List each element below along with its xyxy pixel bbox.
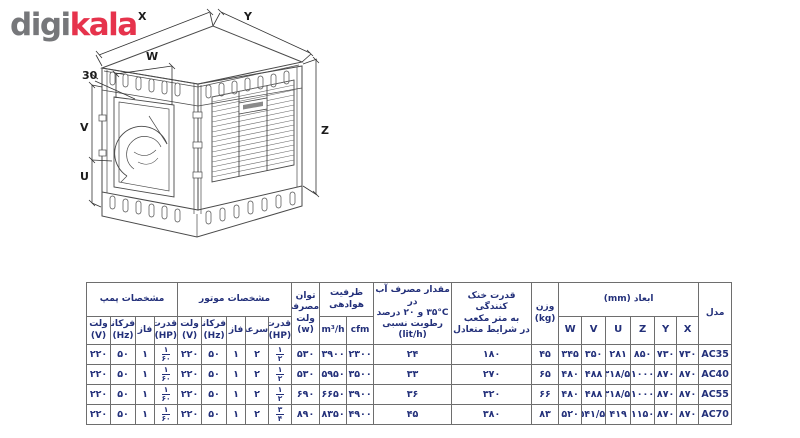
table-cell: ۸۹۰ bbox=[292, 405, 320, 425]
base-skirt bbox=[102, 186, 302, 237]
table-cell: ۳۹۰۰ bbox=[347, 385, 374, 405]
table-cell: ۵۳۰ bbox=[292, 345, 320, 365]
table-cell: ۵۰ bbox=[202, 405, 227, 425]
col-header-m3h: m³/h bbox=[320, 317, 347, 345]
table-cell: ۵۰ bbox=[202, 345, 227, 365]
dim-label-z: Z bbox=[321, 124, 329, 137]
table-cell: ۱۶۰ bbox=[155, 365, 178, 385]
dim-label-u: U bbox=[80, 170, 89, 183]
cooler-body bbox=[99, 26, 302, 237]
col-header-dim-v: V bbox=[582, 317, 606, 345]
table-cell: ۸۷۰ bbox=[655, 365, 677, 385]
table-cell: ۴۵ bbox=[532, 345, 559, 365]
table-cell: ۳۵۰ bbox=[582, 345, 606, 365]
table-cell: ۵۰ bbox=[111, 385, 136, 405]
table-cell: ۱۰۰۰ bbox=[631, 385, 655, 405]
table-cell: ۵۰ bbox=[111, 365, 136, 385]
table-cell: ۱۲ bbox=[269, 385, 292, 405]
table-cell: ۳۶ bbox=[374, 385, 452, 405]
dimension-lines bbox=[89, 9, 319, 207]
product-spec-image: digikala bbox=[0, 0, 800, 438]
fraction-value: ۱۶۰ bbox=[161, 386, 170, 404]
table-cell: ۳۱۸/۵ bbox=[606, 365, 631, 385]
table-cell: ۵۰ bbox=[111, 405, 136, 425]
fraction-value: ۱۶۰ bbox=[161, 366, 170, 384]
table-cell: ۲۳۰۰ bbox=[347, 345, 374, 365]
table-cell: ۵۰ bbox=[111, 345, 136, 365]
col-header-motor-volt: ولت (V) bbox=[178, 317, 202, 345]
table-cell: ۱۸۰ bbox=[452, 345, 532, 365]
col-header-motor-freq: فرکانس (Hz) bbox=[202, 317, 227, 345]
table-cell: ۶۶ bbox=[532, 385, 559, 405]
table-cell: AC40 bbox=[699, 365, 732, 385]
table-cell: ۱ bbox=[227, 405, 246, 425]
table-cell: ۱ bbox=[136, 345, 155, 365]
col-header-dim-z: Z bbox=[631, 317, 655, 345]
table-cell: ۲۲۰ bbox=[178, 405, 202, 425]
dim-label-y: Y bbox=[243, 10, 253, 23]
table-row: AC70۸۷۰۸۷۰۱۱۵۰۴۱۹۵۴۱/۵۵۲۰۸۳۳۸۰۴۵۴۹۰۰۸۳۵۰… bbox=[87, 405, 732, 425]
fraction-value: ۱۶۰ bbox=[161, 406, 170, 424]
dim-label-x: X bbox=[138, 10, 147, 23]
col-header-dim-w: W bbox=[559, 317, 582, 345]
table-cell: ۱۱۵۰ bbox=[631, 405, 655, 425]
table-cell: ۱ bbox=[136, 405, 155, 425]
col-header-dim-y: Y bbox=[655, 317, 677, 345]
col-header-power: توان مصرفی ولت (w) bbox=[292, 283, 320, 345]
group-header-pump-specs: مشخصات پمپ bbox=[87, 283, 178, 317]
table-cell: ۲۲۰ bbox=[178, 365, 202, 385]
col-header-cooling-capacity: قدرت خنک کنندگی به متر مکعب در شرایط متع… bbox=[452, 283, 532, 345]
table-cell: ۴۸۰ bbox=[559, 385, 582, 405]
table-cell: ۱ bbox=[227, 385, 246, 405]
table-row: AC40۸۷۰۸۷۰۱۰۰۰۳۱۸/۵۴۸۸۴۸۰۶۵۲۷۰۳۳۳۵۰۰۵۹۵۰… bbox=[87, 365, 732, 385]
dim-label-offset-30: 30 bbox=[82, 69, 98, 82]
table-row: AC55۸۷۰۸۷۰۱۰۰۰۳۱۸/۵۴۸۸۴۸۰۶۶۳۲۰۳۶۳۹۰۰۶۶۵۰… bbox=[87, 385, 732, 405]
table-cell: ۳۵۰۰ bbox=[347, 365, 374, 385]
table-cell: ۱۰۰۰ bbox=[631, 365, 655, 385]
table-cell: ۴۵ bbox=[374, 405, 452, 425]
col-header-model: مدل bbox=[699, 283, 732, 345]
table-cell: ۱۶۰ bbox=[155, 385, 178, 405]
table-cell: AC55 bbox=[699, 385, 732, 405]
table-cell: ۱۶۰ bbox=[155, 345, 178, 365]
table-cell: ۸۷۰ bbox=[677, 405, 699, 425]
table-cell: ۸۷۰ bbox=[677, 365, 699, 385]
table-cell: ۱۶۰ bbox=[155, 405, 178, 425]
table-cell: ۱ bbox=[136, 365, 155, 385]
table-cell: ۲۲۰ bbox=[178, 385, 202, 405]
table-cell: ۳۱۸/۵ bbox=[606, 385, 631, 405]
table-cell: ۴۹۰۰ bbox=[347, 405, 374, 425]
table-cell: ۶۹۰ bbox=[292, 385, 320, 405]
col-header-pump-freq: فرکانس (Hz) bbox=[111, 317, 136, 345]
dim-label-w: W bbox=[146, 50, 158, 63]
table-cell: ۸۷۰ bbox=[655, 405, 677, 425]
base-vent-slots bbox=[110, 192, 295, 224]
table-cell: ۲۷۰ bbox=[452, 365, 532, 385]
table-cell: ۵۹۵۰ bbox=[320, 365, 347, 385]
table-cell: ۸۵۰ bbox=[631, 345, 655, 365]
col-header-motor-hp: قدرت (HP) bbox=[269, 317, 292, 345]
table-cell: ۸۷۰ bbox=[655, 385, 677, 405]
table-cell: ۱ bbox=[136, 385, 155, 405]
table-cell: ۲ bbox=[246, 345, 269, 365]
table-cell: ۳۸۰ bbox=[452, 405, 532, 425]
col-header-motor-phase: فاز bbox=[227, 317, 246, 345]
louver-panel bbox=[212, 80, 294, 182]
table-cell: ۸۳۵۰ bbox=[320, 405, 347, 425]
table-cell: ۵۳۰ bbox=[292, 365, 320, 385]
table-cell: ۲۴ bbox=[374, 345, 452, 365]
table-cell: ۳۲۰ bbox=[452, 385, 532, 405]
table-cell: ۵۴۱/۵ bbox=[582, 405, 606, 425]
table-cell: ۱ bbox=[227, 365, 246, 385]
fraction-value: ۱۲ bbox=[276, 366, 285, 384]
table-cell: ۶۶۵۰ bbox=[320, 385, 347, 405]
col-header-weight: وزن (kg) bbox=[532, 283, 559, 345]
table-cell: ۸۷۰ bbox=[677, 385, 699, 405]
col-header-pump-volt: ولت (V) bbox=[87, 317, 111, 345]
table-cell: AC70 bbox=[699, 405, 732, 425]
table-cell: ۳۴۵ bbox=[559, 345, 582, 365]
table-cell: ۵۰ bbox=[202, 385, 227, 405]
col-header-pump-hp: قدرت (HP) bbox=[155, 317, 178, 345]
table-cell: ۲۲۰ bbox=[178, 345, 202, 365]
table-cell: ۲ bbox=[246, 385, 269, 405]
table-cell: ۴۱۹ bbox=[606, 405, 631, 425]
fraction-value: ۱۲ bbox=[276, 386, 285, 404]
dimension-labels: X Y W Z V U 30 bbox=[80, 10, 329, 183]
table-cell: ۴۸۰ bbox=[559, 365, 582, 385]
table-cell: ۲۲۰ bbox=[87, 345, 111, 365]
fraction-value: ۱۶۰ bbox=[161, 346, 170, 364]
spec-table: مدل ابعاد (mm) وزن (kg) قدرت خنک کنندگی … bbox=[86, 282, 732, 425]
table-row: AC35۷۳۰۷۳۰۸۵۰۲۸۱۳۵۰۳۴۵۴۵۱۸۰۲۴۲۳۰۰۳۹۰۰۵۳۰… bbox=[87, 345, 732, 365]
table-cell: ۷۳۰ bbox=[677, 345, 699, 365]
table-cell: ۸۳ bbox=[532, 405, 559, 425]
table-cell: ۴۸۸ bbox=[582, 365, 606, 385]
col-header-motor-speed: سرعت bbox=[246, 317, 269, 345]
table-cell: ۲ bbox=[246, 365, 269, 385]
col-header-water-consumption: مقدار مصرف آب در ۳۵°C و ۲۰ درصد رطوبت نس… bbox=[374, 283, 452, 345]
table-cell: ۳۴ bbox=[269, 405, 292, 425]
blower-scroll bbox=[115, 126, 167, 176]
fraction-value: ۱۲ bbox=[276, 346, 285, 364]
table-cell: ۵۲۰ bbox=[559, 405, 582, 425]
table-cell: ۴۸۸ bbox=[582, 385, 606, 405]
table-cell: ۵۰ bbox=[202, 365, 227, 385]
header-row-groups: مدل ابعاد (mm) وزن (kg) قدرت خنک کنندگی … bbox=[87, 283, 732, 317]
top-vent-slots bbox=[110, 71, 289, 98]
col-header-dim-u: U bbox=[606, 317, 631, 345]
col-header-cfm: cfm bbox=[347, 317, 374, 345]
group-header-motor-specs: مشخصات موتور bbox=[178, 283, 292, 317]
table-cell: AC35 bbox=[699, 345, 732, 365]
table-cell: ۱۲ bbox=[269, 345, 292, 365]
table-cell: ۷۳۰ bbox=[655, 345, 677, 365]
col-header-pump-phase: فاز bbox=[136, 317, 155, 345]
table-cell: ۲۸۱ bbox=[606, 345, 631, 365]
dim-label-v: V bbox=[80, 121, 89, 134]
cooler-technical-drawing: X Y W Z V U 30 bbox=[0, 0, 400, 265]
spec-table-body: AC35۷۳۰۷۳۰۸۵۰۲۸۱۳۵۰۳۴۵۴۵۱۸۰۲۴۲۳۰۰۳۹۰۰۵۳۰… bbox=[87, 345, 732, 425]
group-header-air-delivery: ظرفیت هوادهی bbox=[320, 283, 374, 317]
fan-opening bbox=[114, 97, 174, 197]
table-cell: ۳۹۰۰ bbox=[320, 345, 347, 365]
table-cell: ۳۳ bbox=[374, 365, 452, 385]
table-cell: ۲ bbox=[246, 405, 269, 425]
table-cell: ۱ bbox=[227, 345, 246, 365]
table-cell: ۲۲۰ bbox=[87, 385, 111, 405]
table-cell: ۲۲۰ bbox=[87, 405, 111, 425]
fraction-value: ۳۴ bbox=[276, 406, 285, 424]
table-cell: ۶۵ bbox=[532, 365, 559, 385]
group-header-dimensions: ابعاد (mm) bbox=[559, 283, 699, 317]
col-header-dim-x: X bbox=[677, 317, 699, 345]
table-cell: ۱۲ bbox=[269, 365, 292, 385]
table-cell: ۲۲۰ bbox=[87, 365, 111, 385]
